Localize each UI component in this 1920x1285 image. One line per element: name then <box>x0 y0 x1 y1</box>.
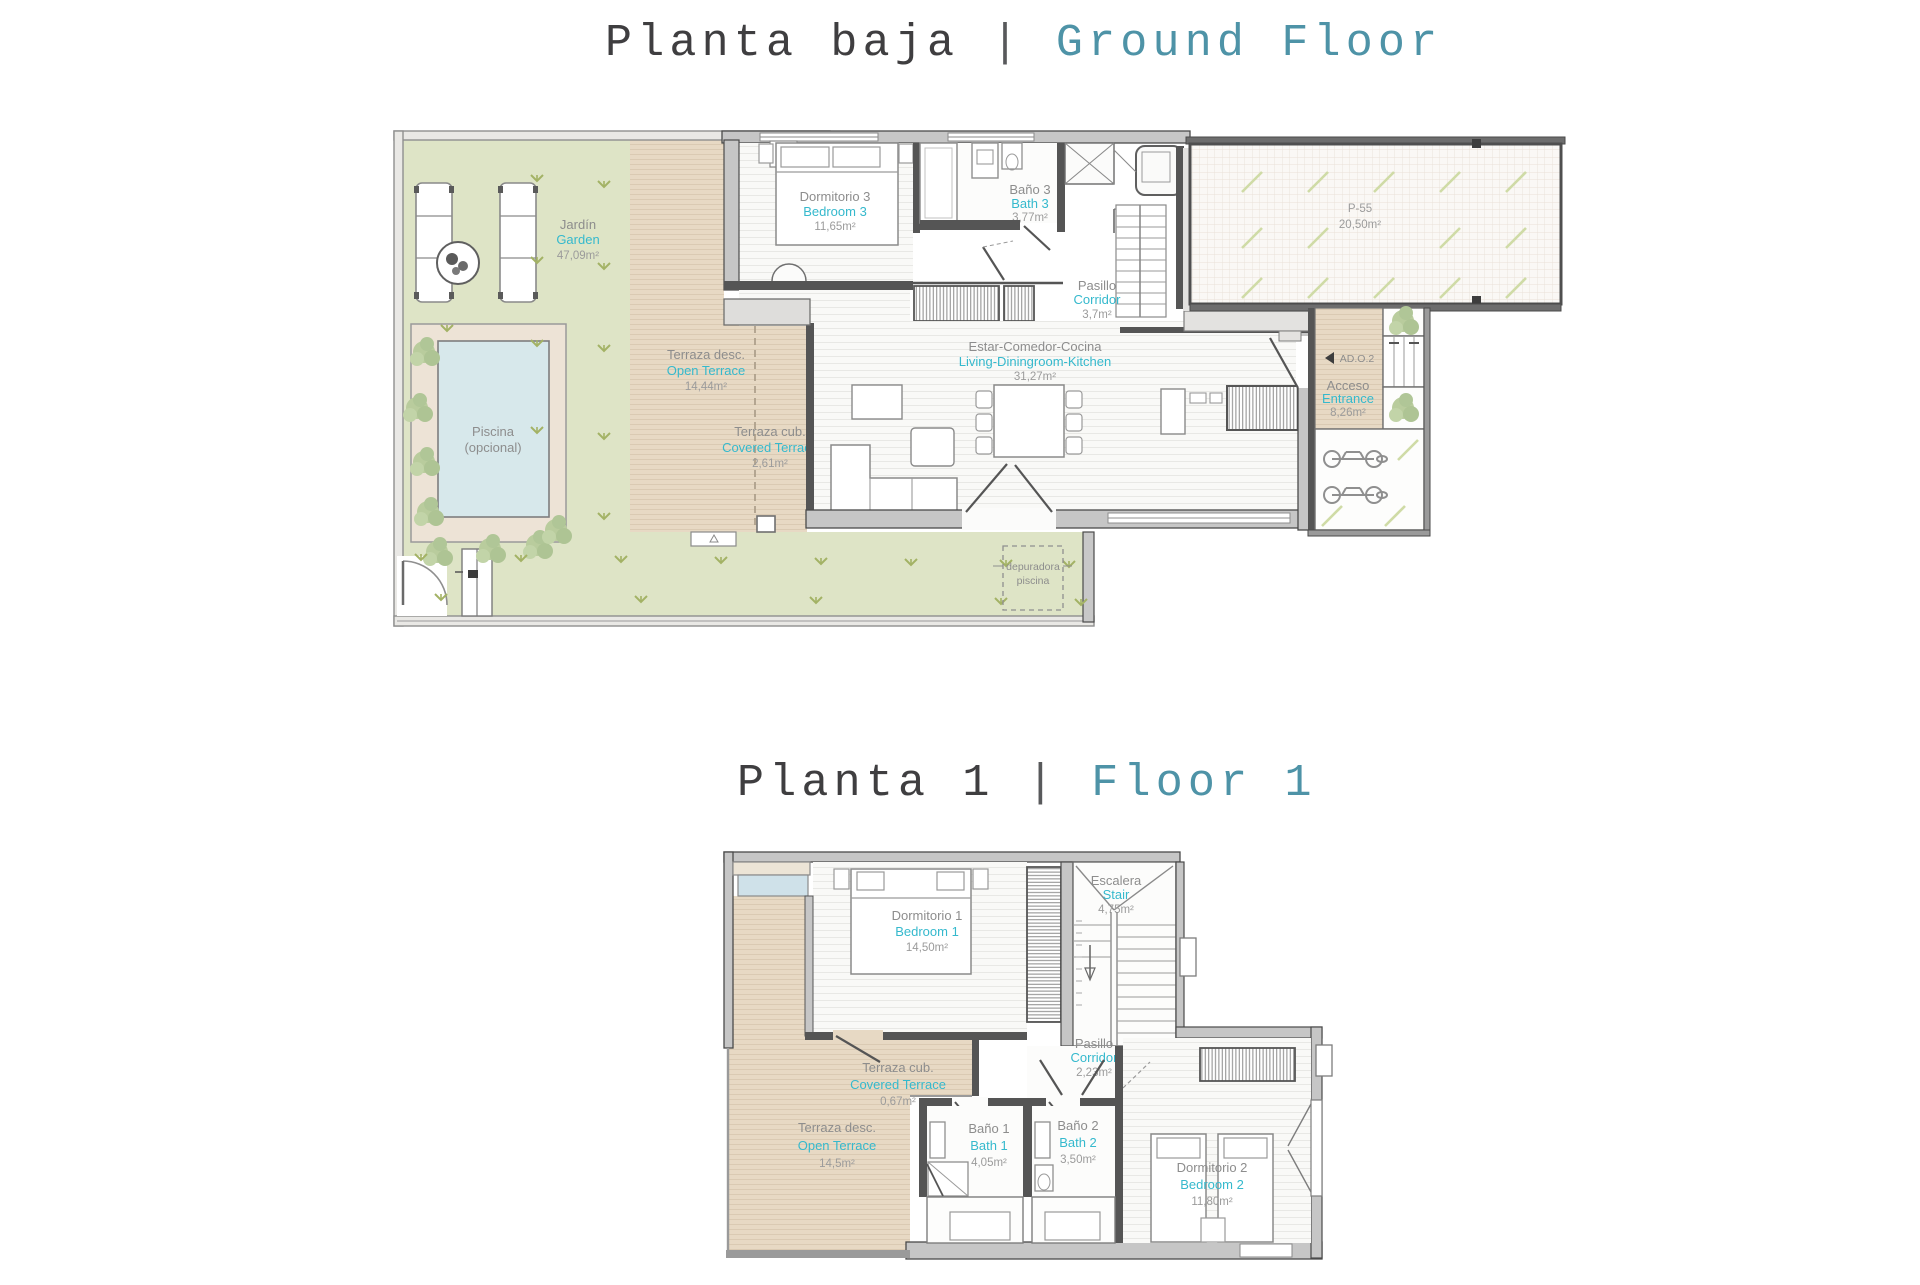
svg-text:Open Terrace: Open Terrace <box>667 363 746 378</box>
svg-text:Baño 2: Baño 2 <box>1057 1118 1098 1133</box>
svg-text:Covered Terrace: Covered Terrace <box>722 440 818 455</box>
svg-text:Corridor: Corridor <box>1074 292 1122 307</box>
svg-text:Bedroom 2: Bedroom 2 <box>1180 1177 1244 1192</box>
svg-text:Garden: Garden <box>556 232 599 247</box>
svg-text:Pasillo: Pasillo <box>1078 278 1116 293</box>
svg-text:Terraza cub.: Terraza cub. <box>734 424 806 439</box>
svg-text:Pasillo: Pasillo <box>1075 1036 1113 1051</box>
svg-text:Planta baja | Ground Floor: Planta baja | Ground Floor <box>605 18 1442 69</box>
svg-text:14,5m²: 14,5m² <box>819 1158 855 1170</box>
svg-text:31,27m²: 31,27m² <box>1014 371 1056 383</box>
svg-text:Terraza desc.: Terraza desc. <box>798 1120 876 1135</box>
svg-text:4,75m²: 4,75m² <box>1098 904 1134 916</box>
svg-text:2,61m²: 2,61m² <box>752 458 788 470</box>
svg-text:Dormitorio 2: Dormitorio 2 <box>1177 1160 1248 1175</box>
svg-text:Bedroom 3: Bedroom 3 <box>803 204 867 219</box>
svg-text:3,50m²: 3,50m² <box>1060 1154 1096 1166</box>
svg-text:Corridor: Corridor <box>1071 1050 1119 1065</box>
svg-text:Piscina: Piscina <box>472 424 515 439</box>
svg-text:Estar-Comedor-Cocina: Estar-Comedor-Cocina <box>969 339 1103 354</box>
svg-text:Dormitorio 1: Dormitorio 1 <box>892 908 963 923</box>
svg-text:Bath 1: Bath 1 <box>970 1138 1008 1153</box>
svg-text:Terraza cub.: Terraza cub. <box>862 1060 934 1075</box>
svg-text:47,09m²: 47,09m² <box>557 250 599 262</box>
svg-text:P-55: P-55 <box>1348 203 1372 215</box>
svg-text:14,50m²: 14,50m² <box>906 942 948 954</box>
svg-text:11,80m²: 11,80m² <box>1191 1196 1233 1208</box>
svg-text:Bedroom 1: Bedroom 1 <box>895 924 959 939</box>
svg-text:Planta 1 | Floor 1: Planta 1 | Floor 1 <box>737 758 1317 809</box>
svg-text:Entrance: Entrance <box>1322 391 1374 406</box>
svg-text:Escalera: Escalera <box>1091 873 1142 888</box>
svg-text:3,7m²: 3,7m² <box>1082 309 1112 321</box>
svg-text:piscina: piscina <box>1017 575 1050 587</box>
svg-text:14,44m²: 14,44m² <box>685 381 727 393</box>
svg-text:8,26m²: 8,26m² <box>1330 407 1366 419</box>
svg-text:20,50m²: 20,50m² <box>1339 219 1381 231</box>
svg-text:Open Terrace: Open Terrace <box>798 1138 877 1153</box>
svg-text:Dormitorio 3: Dormitorio 3 <box>800 189 871 204</box>
svg-text:depuradora: depuradora <box>1006 561 1060 573</box>
svg-text:Stair: Stair <box>1103 887 1130 902</box>
svg-text:AD.O.2: AD.O.2 <box>1340 353 1375 365</box>
svg-text:Bath 3: Bath 3 <box>1011 196 1049 211</box>
svg-text:Baño 3: Baño 3 <box>1009 182 1050 197</box>
svg-text:4,05m²: 4,05m² <box>971 1157 1007 1169</box>
svg-text:Jardín: Jardín <box>560 217 596 232</box>
svg-text:11,65m²: 11,65m² <box>814 221 856 233</box>
svg-text:Terraza desc.: Terraza desc. <box>667 347 745 362</box>
svg-text:Covered Terrace: Covered Terrace <box>850 1077 946 1092</box>
svg-text:(opcional): (opcional) <box>464 440 521 455</box>
svg-text:0,67m²: 0,67m² <box>880 1096 916 1108</box>
svg-text:Baño 1: Baño 1 <box>968 1121 1009 1136</box>
svg-text:Living-Diningroom-Kitchen: Living-Diningroom-Kitchen <box>959 354 1111 369</box>
svg-text:Bath 2: Bath 2 <box>1059 1135 1097 1150</box>
